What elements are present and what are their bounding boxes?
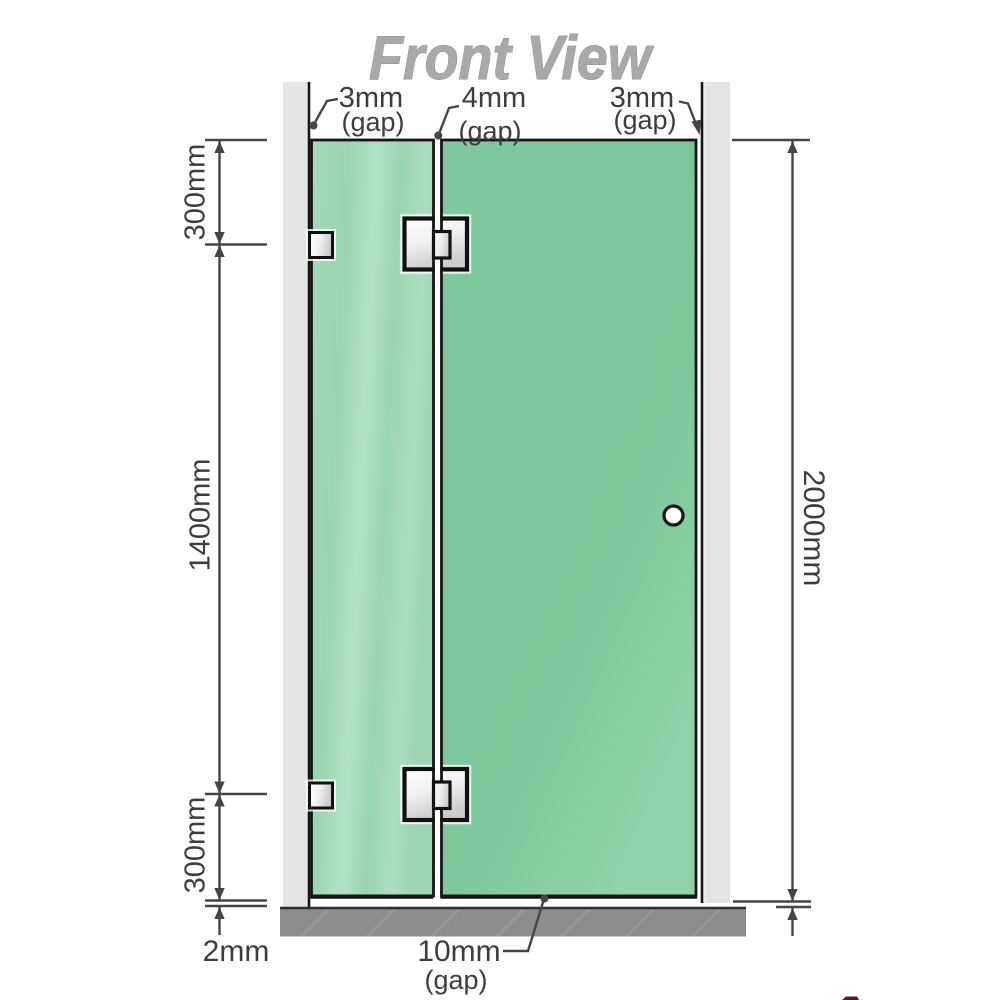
- svg-text:300mm: 300mm: [180, 797, 212, 894]
- svg-text:2000mm: 2000mm: [797, 470, 830, 587]
- svg-text:300mm: 300mm: [180, 144, 212, 241]
- svg-text:(gap): (gap): [613, 105, 676, 135]
- svg-text:1400mm: 1400mm: [185, 459, 217, 572]
- svg-text:2mm: 2mm: [203, 935, 270, 968]
- svg-text:4mm: 4mm: [462, 82, 526, 114]
- svg-text:(gap): (gap): [341, 107, 404, 137]
- svg-text:(gap): (gap): [424, 965, 487, 995]
- svg-text:10mm: 10mm: [417, 935, 500, 968]
- svg-text:(gap): (gap): [458, 116, 521, 146]
